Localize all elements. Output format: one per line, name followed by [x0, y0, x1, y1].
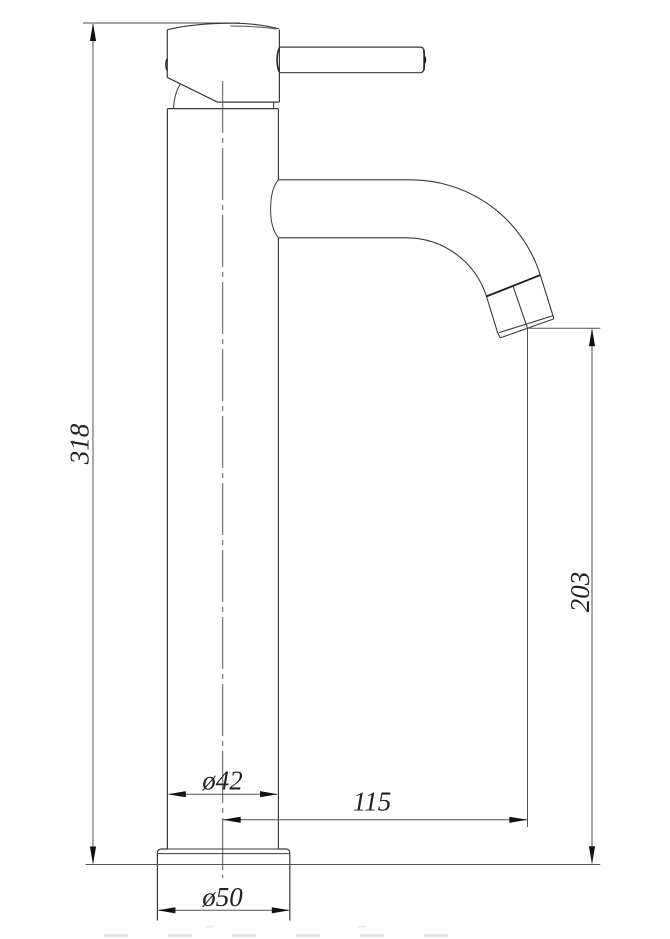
svg-text:203: 203 [565, 572, 595, 613]
svg-text:318: 318 [65, 423, 95, 465]
svg-text:ø42: ø42 [201, 766, 243, 796]
svg-text:ø50: ø50 [201, 882, 243, 912]
svg-text:115: 115 [353, 787, 392, 817]
